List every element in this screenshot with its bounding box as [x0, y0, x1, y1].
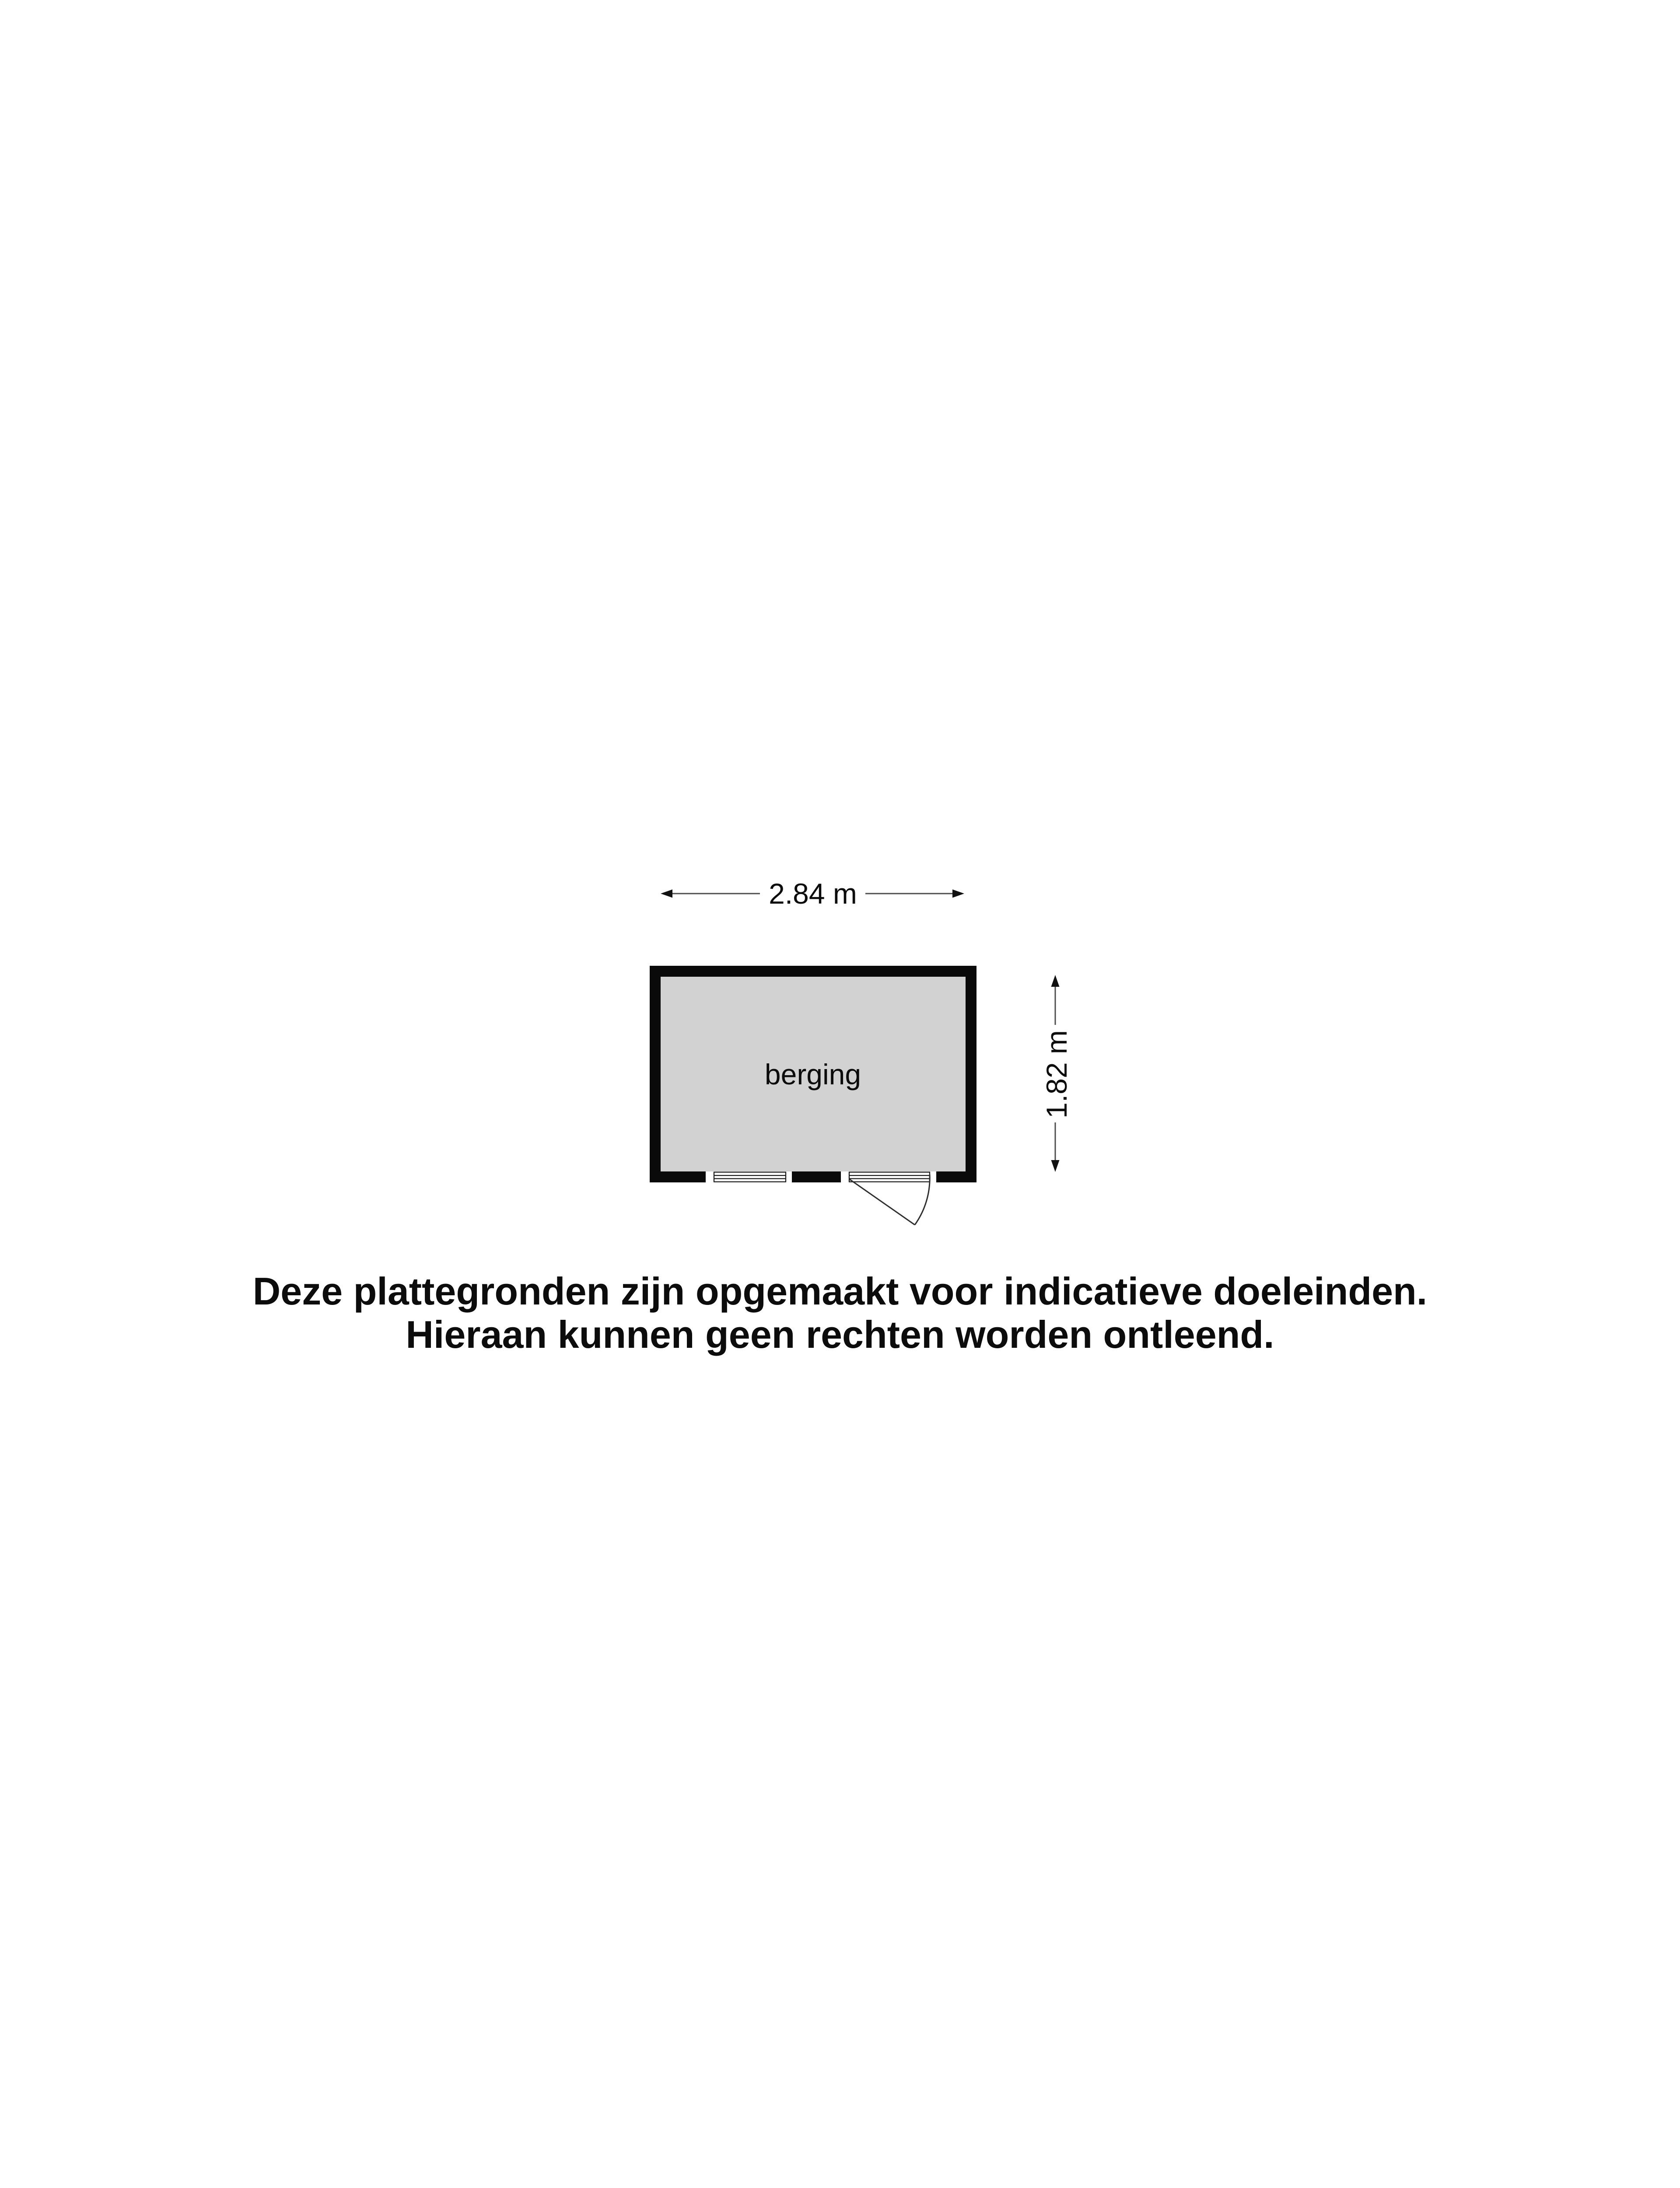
- svg-text:Hieraan kunnen geen rechten wo: Hieraan kunnen geen rechten worden ontle…: [406, 1313, 1274, 1356]
- svg-text:1.82 m: 1.82 m: [1040, 1030, 1073, 1119]
- svg-text:2.84 m: 2.84 m: [769, 877, 857, 910]
- svg-text:berging: berging: [765, 1058, 861, 1090]
- svg-text:Deze plattegronden zijn opgema: Deze plattegronden zijn opgemaakt voor i…: [253, 1269, 1428, 1313]
